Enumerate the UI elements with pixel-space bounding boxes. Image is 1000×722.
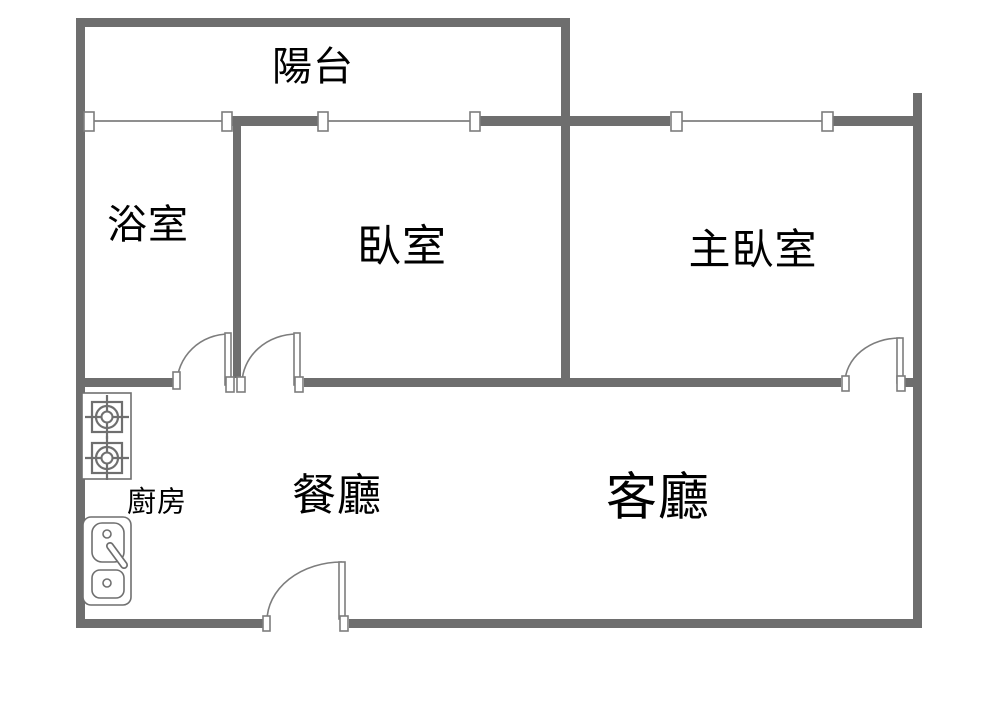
room-label-bathroom: 浴室: [107, 205, 189, 245]
window-post: [671, 112, 682, 131]
wall-right: [913, 93, 922, 628]
door-jamb: [173, 372, 180, 389]
door-swing-arc-icon: [267, 562, 342, 621]
burner-icon: [85, 436, 129, 480]
wall-window-row-a: [232, 116, 318, 126]
door-bedroom: [237, 333, 303, 392]
room-label-living-room: 客廳: [606, 472, 710, 523]
floor-plan-drawing: [0, 0, 1000, 722]
wall-bottom-right: [349, 619, 921, 628]
room-label-kitchen: 廚房: [127, 489, 187, 518]
door-jamb: [263, 616, 270, 631]
doors: [173, 333, 905, 631]
wall-bathroom-bottom: [76, 378, 176, 387]
room-label-master-bedroom: 主臥室: [688, 229, 817, 271]
walls: [76, 18, 922, 628]
floor-plan: 陽台 浴室 臥室 主臥室 廚房 餐廳 客廳: [0, 0, 1000, 722]
window-bedroom: [318, 112, 480, 131]
window-post: [822, 112, 833, 131]
window-master-bedroom: [671, 112, 833, 131]
door-swing-arc-icon: [177, 334, 229, 384]
door-swing-arc-icon: [242, 334, 297, 384]
door-leaf: [339, 562, 345, 619]
door-jamb: [237, 377, 245, 392]
door-jamb: [295, 377, 303, 392]
door-jamb: [897, 376, 905, 391]
wall-bedroom-row-bottom: [304, 378, 841, 387]
wall-divider-bathroom: [233, 122, 241, 378]
window-post: [318, 112, 328, 131]
wall-window-row-c: [833, 116, 913, 126]
door-jamb: [226, 377, 234, 392]
door-entrance: [263, 562, 348, 631]
wall-window-row-b: [480, 116, 670, 126]
wall-bottom-left: [76, 619, 263, 628]
burner-icon: [85, 395, 129, 439]
door-jamb: [842, 376, 849, 391]
window-post: [222, 112, 232, 131]
door-bathroom: [173, 333, 234, 392]
sink-drain: [103, 579, 111, 587]
window-post: [470, 112, 480, 131]
room-label-balcony: 陽台: [272, 47, 354, 87]
wall-divider-bedrooms: [561, 18, 570, 387]
sink-drain: [103, 530, 111, 538]
room-label-dining-room: 餐廳: [292, 474, 382, 518]
door-master-bedroom: [842, 338, 905, 391]
wall-top-balcony: [76, 18, 570, 27]
door-swing-arc-icon: [845, 338, 900, 383]
door-jamb: [340, 616, 348, 631]
stove-two-burners-icon: [82, 393, 131, 480]
windows: [84, 112, 833, 131]
double-basin-sink-icon: [83, 517, 131, 605]
window-post: [84, 112, 94, 131]
window-bathroom: [84, 112, 232, 131]
room-label-bedroom: 臥室: [357, 225, 447, 269]
